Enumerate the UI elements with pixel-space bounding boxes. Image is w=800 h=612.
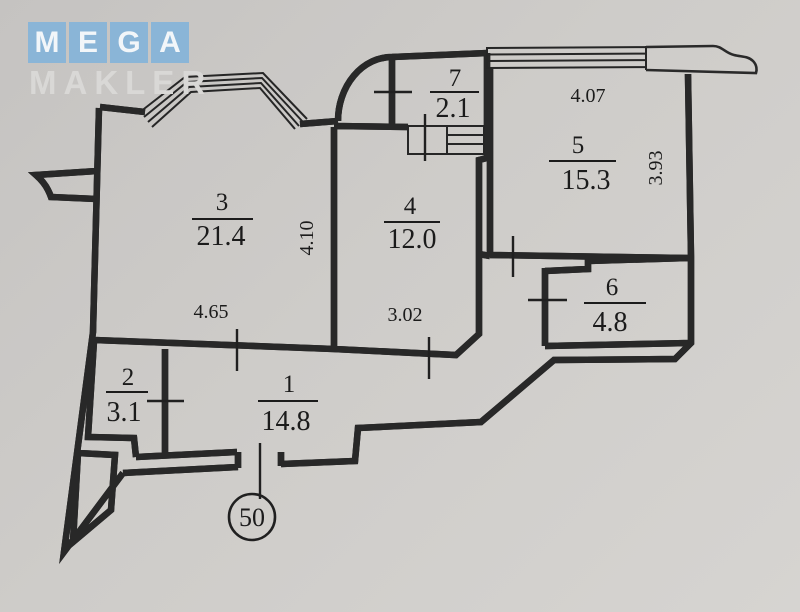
- room4-label: 4 12.0: [384, 193, 440, 255]
- dim-room5-depth: 3.93: [645, 151, 667, 186]
- logo-tiles: M E G A: [28, 22, 212, 63]
- balcony-slab: [646, 46, 757, 73]
- logo-tile-a: A: [151, 22, 189, 63]
- room5-window-band: [487, 46, 646, 70]
- logo-subtitle: MAKLER: [29, 66, 212, 99]
- room1-number: 1: [283, 371, 296, 398]
- room1-label: 1 14.8: [258, 371, 318, 437]
- logo-tile-g: G: [110, 22, 148, 63]
- room7-area: 2.1: [436, 93, 471, 124]
- room2-number: 2: [122, 364, 135, 391]
- room3-area: 21.4: [197, 221, 246, 252]
- megamakler-logo: M E G A MAKLER: [28, 22, 212, 99]
- room6-label: 6 4.8: [584, 274, 646, 338]
- room1-area: 14.8: [262, 406, 311, 437]
- room5-number: 5: [572, 132, 585, 159]
- room3-number: 3: [216, 189, 229, 216]
- room4-area: 12.0: [388, 224, 437, 255]
- room2-label: 2 3.1: [106, 364, 148, 428]
- dim-room3-width: 4.65: [194, 301, 229, 323]
- room5-label: 5 15.3: [549, 132, 616, 196]
- room7-number: 7: [449, 65, 462, 92]
- room4-number: 4: [404, 193, 417, 220]
- logo-tile-e: E: [69, 22, 107, 63]
- room3-label: 3 21.4: [192, 189, 253, 252]
- dim-room5-width: 4.07: [571, 85, 606, 107]
- balcony-door-window-block: [408, 126, 484, 154]
- room2-area: 3.1: [107, 397, 142, 428]
- room5-area: 15.3: [562, 165, 611, 196]
- logo-tile-m: M: [28, 22, 66, 63]
- unit-number-badge: 50: [229, 494, 275, 540]
- room6-area: 4.8: [593, 307, 628, 338]
- unit-number: 50: [239, 503, 265, 532]
- dim-room3-depth: 4.10: [296, 221, 318, 256]
- room7-label: 7 2.1: [430, 65, 479, 124]
- room6-number: 6: [606, 274, 619, 301]
- dim-room4-width: 3.02: [388, 304, 423, 326]
